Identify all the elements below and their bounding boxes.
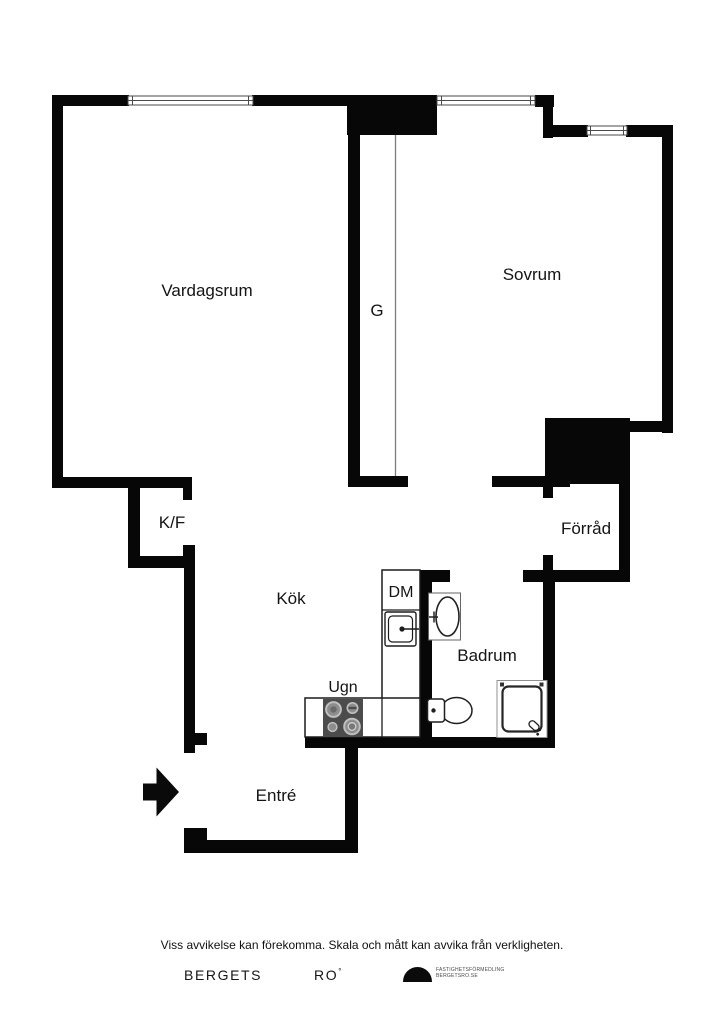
room-label-closet-g: G [370,301,383,320]
washbasin-icon [429,593,461,640]
wall-segment [348,130,360,487]
wall-segment [543,555,553,572]
wall-segment [128,477,140,568]
wall-segment [252,95,353,106]
room-label-oven: Ugn [328,679,357,696]
wall-segment [543,484,553,498]
wall-segment [347,95,437,135]
wall-segment [52,477,192,488]
wall-segment [553,125,588,137]
floor-plan: Vardagsrum Sovrum G K/F Förråd Kök DM Ba… [0,0,724,1024]
window-icon [587,126,627,135]
wall-segment [543,95,553,138]
room-label-dishwasher: DM [389,584,414,601]
wall-segment [545,418,630,484]
wall-segment [184,733,207,745]
window-icon [437,96,535,105]
wall-segment [52,95,129,106]
room-label-vardagsrum: Vardagsrum [161,281,252,300]
floor-plan-page: Vardagsrum Sovrum G K/F Förråd Kök DM Ba… [0,0,724,1024]
window-icon [128,96,253,105]
wall-segment [432,570,450,582]
wall-segment [184,545,195,753]
wall-segment [492,476,570,487]
stove-icon [323,699,363,737]
room-label-entre: Entré [256,786,297,805]
room-label-sovrum: Sovrum [503,265,562,284]
sink-icon [385,612,419,646]
wall-segment [128,556,192,568]
wall-segment [545,570,630,582]
room-label-badrum: Badrum [457,646,517,665]
walls [52,95,673,853]
wall-segment [52,95,63,488]
wall-segment [662,125,673,433]
room-label-kok: Kök [276,589,306,608]
wall-segment [183,477,192,500]
wall-segment [345,737,358,853]
room-label-forrad: Förråd [561,519,611,538]
entrance-arrow-icon [143,768,179,817]
room-label-fridge-freezer: K/F [159,513,185,532]
wall-segment [626,421,673,432]
toilet-icon [428,698,473,724]
wall-segment [184,840,358,853]
shower-icon [497,681,547,738]
